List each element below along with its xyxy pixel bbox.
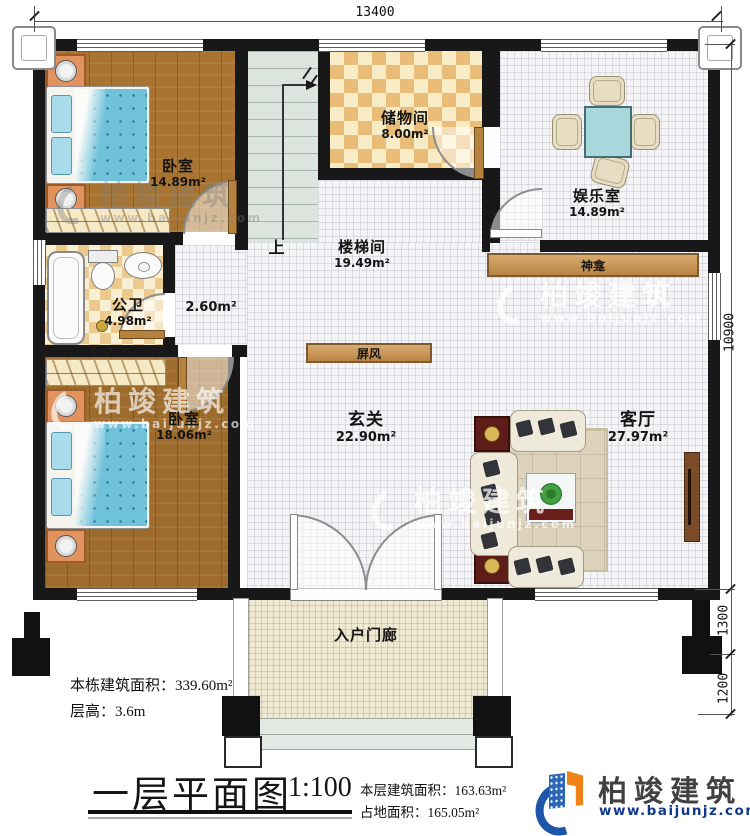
room-area: 14.89m² — [547, 205, 647, 219]
room-label-bathroom: 公卫 4.98m² — [83, 296, 173, 328]
chair — [589, 76, 625, 106]
nightstand — [46, 529, 86, 563]
window-living-right — [708, 273, 721, 340]
entry-door-left-leaf — [290, 514, 298, 590]
wall-stairs-storage — [318, 39, 330, 180]
stairs-direction-line — [282, 86, 284, 240]
cushion — [557, 557, 575, 575]
tb-note-text: 本层建筑面积：163.63m² — [360, 783, 506, 798]
wall-left — [33, 39, 45, 600]
wall-bedroom1-bottom — [33, 232, 183, 245]
bathtub — [47, 251, 85, 345]
window-living-bottom — [535, 588, 658, 601]
room-label-corridor: 2.60m² — [176, 300, 246, 316]
column-cap-inner — [707, 35, 733, 61]
toilet-bowl — [91, 262, 115, 290]
plant — [540, 483, 562, 505]
brand-url-text: www.baijunjz.com — [599, 803, 750, 819]
sheet-scale: 1:100 — [288, 772, 352, 804]
room-name: 入户门廊 — [296, 626, 436, 644]
shrine-shelf: 神龛 — [487, 253, 699, 277]
room-label-porch: 入户门廊 — [296, 626, 436, 644]
lamp-icon — [55, 395, 77, 417]
shrine-label: 神龛 — [581, 257, 605, 274]
cushion — [537, 417, 555, 435]
note-floor-height: 层高：3.6m — [70, 700, 145, 721]
lamp-icon — [55, 188, 77, 210]
porch-side-right — [487, 598, 503, 698]
dim-value: 1300 — [717, 605, 732, 636]
sofa-top — [510, 410, 586, 452]
bathroom-door-leaf — [119, 330, 165, 339]
room-label-storage: 储物间 8.00m² — [355, 109, 455, 141]
cushion — [515, 419, 533, 437]
porch-floor — [248, 598, 489, 722]
lamp-icon — [484, 426, 500, 442]
pillow — [51, 432, 72, 470]
lamp-icon — [55, 535, 77, 557]
entry-door-right-leaf — [434, 514, 442, 590]
corner-column-stub — [24, 612, 40, 640]
room-label-bedroom2: 卧室 18.06m² — [134, 410, 234, 442]
room-name: 公卫 — [83, 296, 173, 314]
pillow — [51, 478, 72, 516]
wall-bedroom2-right — [228, 357, 240, 588]
room-area: 27.97m² — [588, 430, 688, 446]
window-bedroom1-top — [77, 39, 203, 52]
room-area: 8.00m² — [355, 127, 455, 141]
floor-plan-sheet: 神龛 屏风 卧室 14.89m² 储物间 8.00m² 娱乐室 14.89m² — [0, 0, 750, 836]
note-text: 层高：3.6m — [70, 704, 145, 720]
corner-column — [12, 638, 50, 676]
column-cap — [698, 26, 742, 70]
brand-url: www.baijunjz.com — [599, 803, 750, 819]
cushion — [482, 459, 500, 477]
room-area: 22.90m² — [316, 430, 416, 446]
room-area: 2.60m² — [176, 300, 246, 316]
wall-entertainment-bottom-b — [540, 240, 708, 252]
cushion — [513, 557, 531, 575]
room-area: 18.06m² — [134, 428, 234, 442]
logo-building-blue — [549, 773, 565, 809]
sink — [124, 252, 162, 279]
sofa-left — [470, 452, 518, 556]
dim-steps-label: 1200 — [717, 659, 732, 719]
pillow — [51, 137, 72, 175]
brand-logo-icon — [536, 768, 590, 826]
note-text: 本栋建筑面积：339.60m² — [70, 678, 232, 694]
dim-porch-label: 1300 — [717, 591, 732, 651]
cushion — [480, 531, 498, 549]
window-storage-top — [319, 39, 425, 52]
stairhall-floor — [318, 180, 482, 242]
cushion — [483, 507, 501, 525]
room-label-bedroom1: 卧室 14.89m² — [128, 157, 228, 189]
sheet-title-text: 一层平面图 — [92, 775, 292, 816]
room-label-living: 客厅 27.97m² — [588, 410, 688, 446]
corner-column-stub — [692, 600, 710, 638]
wardrobe — [46, 208, 170, 233]
room-name: 卧室 — [128, 157, 228, 175]
window-bathroom-left — [33, 240, 46, 285]
bedroom1-door-leaf — [228, 180, 237, 234]
storage-door-leaf — [474, 127, 484, 179]
game-table — [584, 106, 632, 158]
coffee-table-shelf — [529, 509, 573, 520]
wall-bathroom-right-a — [163, 245, 175, 293]
column-cap-inner — [21, 35, 47, 61]
coffee-table — [526, 473, 576, 523]
window-bedroom2-bottom — [77, 588, 197, 601]
room-name: 娱乐室 — [547, 187, 647, 205]
tb-note-text: 占地面积：165.05m² — [360, 805, 479, 820]
room-label-entertainment: 娱乐室 14.89m² — [547, 187, 647, 219]
note-building-area: 本栋建筑面积：339.60m² — [70, 674, 232, 695]
wardrobe — [46, 359, 166, 386]
dim-value: 1200 — [717, 673, 732, 704]
chair — [552, 114, 582, 150]
wall-entertainment-bottom-a — [482, 240, 490, 252]
nightstand — [46, 389, 86, 423]
entertainment-door-leaf — [490, 229, 542, 238]
tv-cabinet — [684, 452, 700, 542]
end-table — [474, 416, 510, 452]
sheet-title: 一层平面图 — [92, 764, 292, 818]
corridor-floor — [175, 245, 247, 345]
porch-column — [473, 696, 511, 736]
room-name: 玄关 — [316, 410, 416, 430]
stairs-direction-line-top — [282, 84, 308, 86]
room-name: 卧室 — [134, 410, 234, 428]
room-label-stairhall: 楼梯间 19.49m² — [312, 238, 412, 270]
pillow — [51, 95, 72, 133]
window-entertainment-top — [541, 39, 667, 52]
room-label-foyer: 玄关 22.90m² — [316, 410, 416, 446]
room-name: 储物间 — [355, 109, 455, 127]
column-cap — [12, 26, 56, 70]
screen-label: 屏风 — [357, 345, 381, 362]
chair — [630, 114, 660, 150]
dim-value: 10900 — [723, 313, 738, 352]
room-name: 楼梯间 — [312, 238, 412, 256]
cushion — [559, 420, 577, 438]
titleblock-footprint-area: 占地面积：165.05m² — [360, 801, 479, 821]
porch-column-base — [475, 736, 513, 768]
titleblock-floor-area: 本层建筑面积：163.63m² — [360, 779, 506, 799]
room-area: 14.89m² — [128, 175, 228, 189]
porch-side-left — [233, 598, 249, 698]
stairs-up-label: 上 — [264, 238, 290, 257]
room-area: 4.98m² — [83, 314, 173, 328]
wall-storage-entertainment-a — [482, 39, 500, 127]
sofa-bottom — [508, 546, 584, 588]
sheet-scale-text: 1:100 — [288, 772, 352, 803]
bedroom2-door-leaf — [178, 357, 187, 413]
dim-ext — [721, 6, 722, 32]
cushion — [535, 555, 553, 573]
wall-bathroom-bottom-b — [232, 345, 247, 357]
wall-bathroom-bottom-a — [33, 345, 178, 357]
room-area: 19.49m² — [312, 256, 412, 270]
dim-value: 13400 — [355, 5, 394, 20]
cushion — [480, 483, 498, 501]
lamp-icon — [484, 558, 500, 574]
dim-width-label: 13400 — [345, 5, 405, 20]
dim-height-label: 10900 — [723, 303, 738, 363]
screen-partition: 屏风 — [306, 343, 432, 363]
room-name: 客厅 — [588, 410, 688, 430]
lamp-icon — [55, 60, 77, 82]
porch-step — [254, 734, 476, 750]
dim-line-top — [35, 21, 723, 22]
stairs-up-text: 上 — [264, 238, 290, 257]
porch-column — [222, 696, 260, 736]
dim-ext — [34, 6, 35, 32]
